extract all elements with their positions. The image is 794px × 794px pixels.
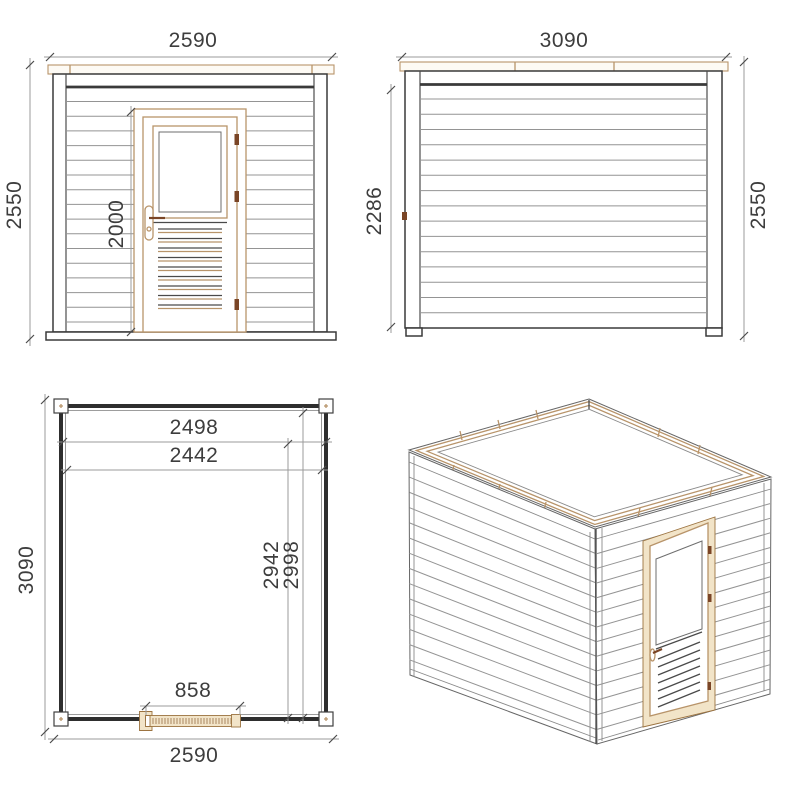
plan-dim-inner-width-label: 2498 <box>170 416 219 439</box>
side-roof <box>400 62 728 71</box>
side-dim-wall-height-label: 2286 <box>363 187 386 236</box>
sauna-technical-drawing: 2590 2550 <box>0 0 794 794</box>
front-dim-overall-width: 2590 <box>44 29 338 61</box>
side-hinge-mark <box>402 212 407 220</box>
front-door <box>134 109 246 332</box>
plan-dim-inner-width-2-label: 2442 <box>170 444 219 467</box>
plan-dim-overall-depth-label: 3090 <box>15 546 38 595</box>
front-dim-overall-width-label: 2590 <box>169 29 218 52</box>
side-dim-overall-width: 3090 <box>396 29 732 61</box>
side-wall <box>402 71 722 328</box>
front-roof <box>48 65 334 74</box>
plan-dim-door-opening-label: 858 <box>175 679 212 702</box>
plan-dim-overall-width: 2590 <box>48 735 339 767</box>
side-feet <box>406 328 722 336</box>
front-door-leaf <box>143 117 237 332</box>
front-dim-overall-height-label: 2550 <box>3 181 26 230</box>
iso-door <box>643 517 715 727</box>
plan-dim-overall-depth: 3090 <box>15 394 49 740</box>
floor-plan-view: 2498 2442 3090 2942 2998 858 <box>15 394 339 767</box>
side-dim-overall-height: 2550 <box>740 56 770 342</box>
plan-dim-door-opening: 858 <box>140 679 246 715</box>
front-dim-door-height-label: 2000 <box>105 200 128 249</box>
isometric-view <box>409 399 771 744</box>
side-dim-overall-width-label: 3090 <box>540 29 589 52</box>
plan-dim-overall-width-label: 2590 <box>170 744 219 767</box>
side-elevation-view: 3090 2286 2550 <box>363 29 770 342</box>
side-dim-wall-height: 2286 <box>363 84 395 333</box>
plan-dim-inner-depth-2-label: 2998 <box>280 541 303 590</box>
plan-dim-inner-depth-2: 2998 <box>280 407 307 724</box>
front-dim-overall-height: 2550 <box>3 58 34 346</box>
side-dim-overall-height-label: 2550 <box>747 181 770 230</box>
iso-door-leaf <box>650 523 708 716</box>
front-base <box>46 332 336 340</box>
front-elevation-view: 2590 2550 <box>3 29 338 346</box>
plan-door-threshold <box>140 712 241 731</box>
technical-drawing-page: 2590 2550 <box>0 0 794 794</box>
